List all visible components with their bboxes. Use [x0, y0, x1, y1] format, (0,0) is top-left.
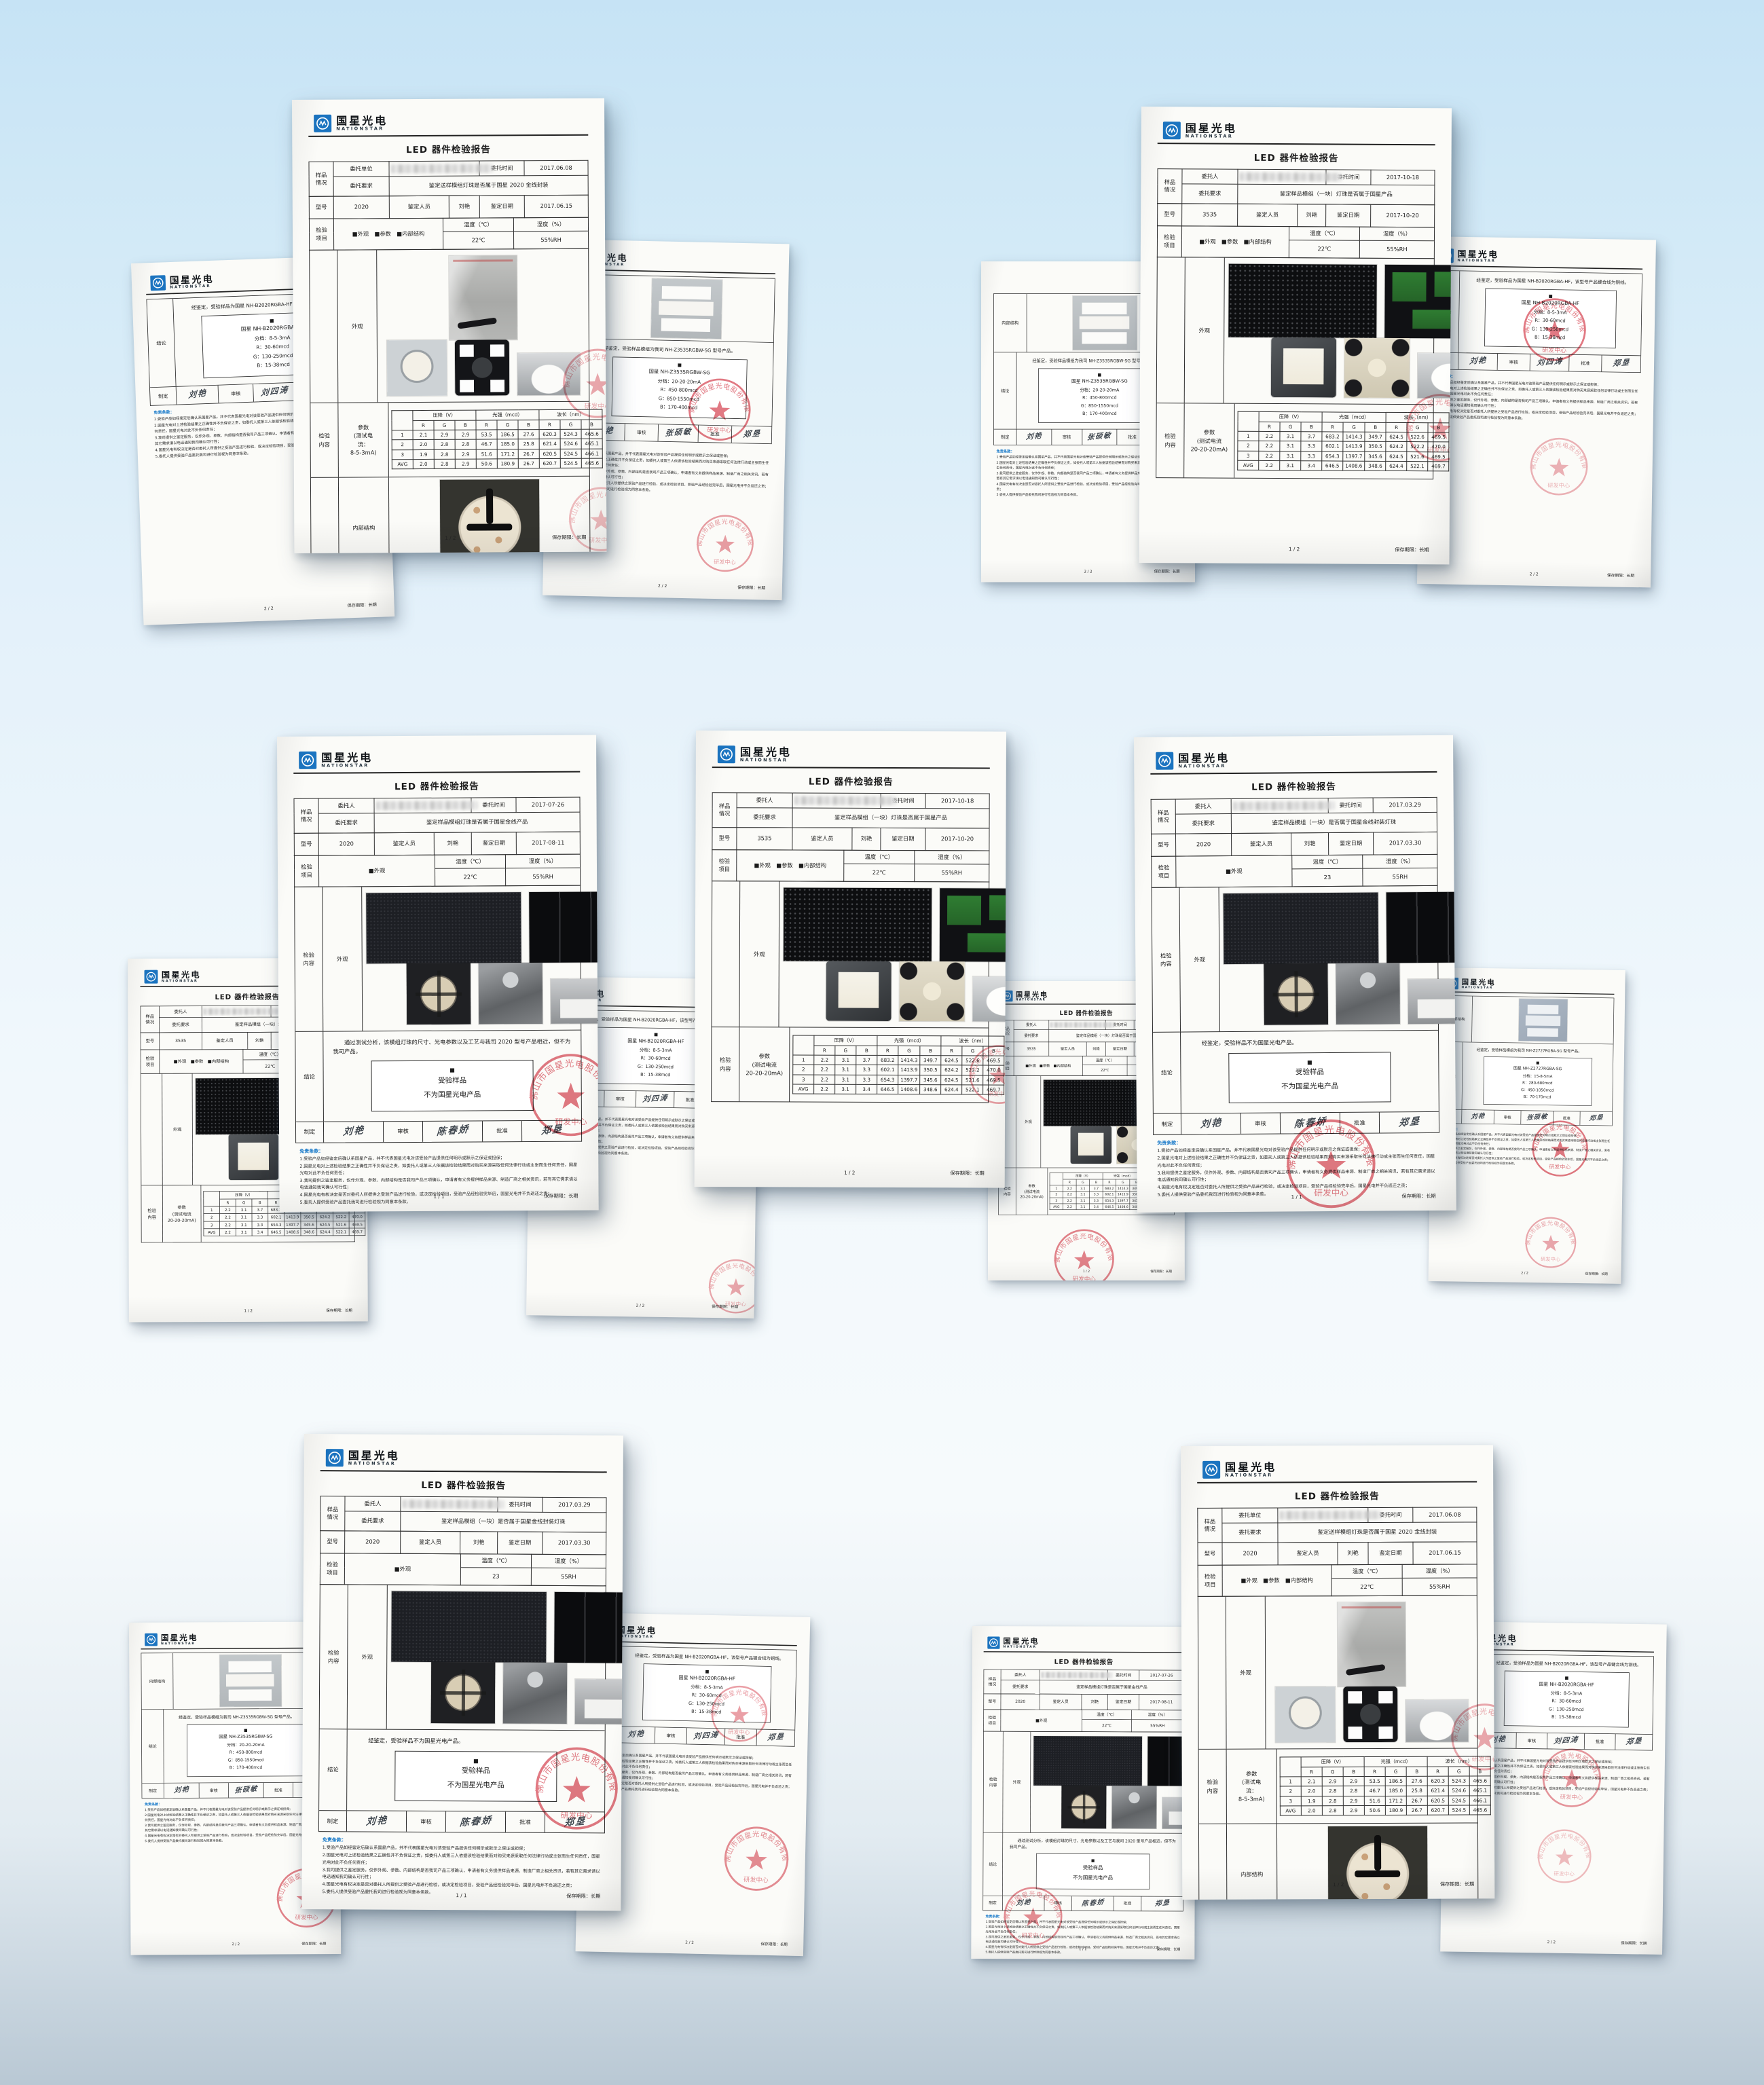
brand-subname: NATIONSTAR	[161, 1642, 198, 1645]
conclusion-label: 结论	[319, 1729, 347, 1810]
inspector-value-cell: 刘艳	[449, 196, 479, 218]
client-name-cell	[1049, 1020, 1106, 1030]
param-sub-header: G	[1280, 422, 1301, 432]
param-value: 2.0	[1301, 1786, 1322, 1796]
page-number: 2 / 2	[1547, 1940, 1556, 1944]
appearance-label: 外观	[347, 1585, 387, 1729]
bag-photo	[1337, 1602, 1405, 1686]
param-row-label: 2	[1238, 441, 1259, 451]
param-value: 25.8	[1406, 1786, 1427, 1796]
param-sub-header: G	[1322, 1767, 1343, 1776]
param-value: 180.9	[1385, 1805, 1406, 1815]
retention-note: 保存期限：长期	[301, 1941, 326, 1946]
sample-header-cell: 样品 情况	[1198, 1508, 1222, 1543]
param-value: 646.5	[1103, 1204, 1116, 1210]
param-value: 2.0	[413, 459, 434, 469]
param-value: 1408.6	[1116, 1204, 1130, 1210]
appearance-section: 检验 内容外观	[1152, 886, 1438, 1032]
chip-detail	[1374, 1835, 1381, 1870]
content-col-label	[1157, 257, 1185, 403]
date-value-cell: 2017.03.30	[1373, 832, 1437, 855]
bin-g-line: G：850-1550mcd	[189, 1756, 303, 1764]
brand-subname: NATIONSTAR	[170, 284, 215, 289]
param-value: 522.2	[1407, 442, 1428, 452]
param-value: 3.4	[1301, 461, 1322, 471]
content-col-label	[712, 881, 739, 1027]
retention-note: 保存期限：长期	[760, 1942, 787, 1948]
content-col-label: 检验 内容	[1152, 888, 1180, 1032]
make-signature: 刘艳	[1015, 1898, 1031, 1909]
conclusion-text: 通过测试分析，该模组灯珠的尺寸、光电参数以及工艺与我司 2020 型号产品相近，…	[333, 1037, 571, 1056]
silverside-photo	[575, 1679, 623, 1724]
param-sub-header: G	[1343, 422, 1365, 432]
param-sub-header: G	[236, 1199, 252, 1206]
appearance-photos	[1224, 258, 1452, 405]
param-value: 345.6	[920, 1075, 941, 1084]
sample-info-table: 样品 情况委托人委托时间2017-10-18委托要求鉴定样品模组（一块）灯珠是否…	[1157, 168, 1435, 205]
brand-name: 国星光电	[740, 746, 792, 758]
request-value-cell: 鉴定样品模组（一块）是否属于国星金线封装灯珠	[401, 1511, 606, 1532]
param-group-wl: 波长（nm）	[941, 1036, 1004, 1046]
request-value-cell: 鉴定送样模组灯珠是否属于国星 2020 金线封装	[389, 175, 588, 196]
param-value: 522.1	[333, 1228, 350, 1236]
sample-info-table: 样品 情况委托人委托时间2017-10-18委托要求鉴定样品模组（一块）灯珠是否…	[712, 792, 990, 828]
param-value: 602.1	[1322, 441, 1343, 451]
review-label: 审核	[624, 424, 658, 441]
param-sub-header: B	[1301, 422, 1322, 432]
make-signature: 刘艳	[1469, 355, 1487, 368]
inspector-value-cell: 刘艳	[1338, 1543, 1368, 1565]
items-header-cell: 检验 项目	[984, 1710, 1001, 1731]
appearance-photos	[779, 882, 1006, 1029]
conclusion-body: 经鉴定，受验样品为国星 NH-B2020RGBA-HF，该型号产品键合线为铜线。…	[1458, 271, 1642, 355]
param-value: 524.3	[1448, 1776, 1469, 1786]
param-value: 2.8	[1322, 1796, 1343, 1805]
silver-photo	[1418, 353, 1452, 399]
param-value: 1413.9	[898, 1065, 920, 1075]
param-value: 2.8	[1322, 1806, 1343, 1815]
param-value: 470.0	[983, 1065, 1004, 1075]
appearance-photos	[382, 249, 584, 403]
param-value: 2.9	[434, 430, 455, 440]
inspector-value-cell: 刘艳	[460, 1532, 498, 1554]
commission-time-value: 2017-10-18	[1371, 170, 1435, 185]
review-label: 审核	[406, 1811, 445, 1832]
verdict-box: ■受验样品不为国星光电产品	[1228, 1052, 1391, 1103]
param-value: 1.9	[413, 449, 434, 460]
param-value: 350.5	[920, 1065, 941, 1075]
signature-row: 制定刘艳审核张硕敏批准郑垦	[1441, 1109, 1612, 1126]
pcb-photo	[940, 888, 1006, 962]
client-label-cell: 委托人	[345, 1496, 401, 1511]
param-value: 2.2	[1063, 1198, 1077, 1204]
param-value: 2.2	[814, 1065, 835, 1074]
param-row-label: AVG	[1238, 460, 1259, 470]
date-value-cell: 2017.06.15	[524, 195, 588, 217]
conclusion-content: 结论经鉴定，受验样品为国星 NH-B2020RGBA-HF，该型号产品键合线为铜…	[1433, 270, 1642, 373]
sample-info-table: 样品 情况委托单位委托时间2017.06.08委托要求鉴定送样模组灯珠是否属于国…	[1197, 1507, 1477, 1543]
param-sub-header: R	[1063, 1179, 1077, 1185]
client-name-cell	[202, 1005, 271, 1017]
brand-subname: NATIONSTAR	[321, 763, 373, 769]
report-title: LED 器件检验报告	[712, 773, 990, 788]
param-group-vf: 压降（V）	[219, 1192, 268, 1199]
param-value: 27.6	[518, 430, 539, 440]
review-signature: 刘四涛	[693, 1730, 719, 1743]
temp-label-cell: 温度（℃）	[1331, 1564, 1402, 1579]
request-value-cell: 鉴定送样模组灯珠是否属于国星 2020 金线封装	[1278, 1522, 1477, 1543]
temp-label-cell: 温度（℃）	[1292, 855, 1363, 869]
model-value-cell: 2020	[318, 833, 374, 855]
param-value: 2.9	[455, 430, 476, 440]
model-label-cell: 型号	[984, 1694, 1001, 1710]
humidity-value-cell: 55%RH	[514, 231, 589, 249]
appearance-photo-cell	[1224, 258, 1452, 405]
make-signature: 刘艳	[173, 1784, 189, 1796]
page-number: 2 / 2	[685, 1940, 694, 1944]
temp-value-cell: 22℃	[1083, 1065, 1128, 1075]
approve-signature-cell: 郑垦	[756, 1729, 795, 1746]
inspection-content: 检验 内容外观结论经鉴定，受验样品不为国星光电产品。■受验样品不为国星光电产品制…	[318, 1584, 606, 1833]
appearance-label: 外观	[1184, 258, 1224, 403]
commission-time-label: 委托时间	[1328, 798, 1373, 813]
humidity-label-cell: 湿度（%）	[531, 1554, 606, 1568]
report-title: LED 器件检验报告	[293, 778, 580, 793]
param-value: 3.4	[252, 1228, 268, 1236]
humidity-label-cell: 湿度（%）	[1131, 1710, 1183, 1720]
param-value: 2.9	[1343, 1806, 1364, 1815]
param-sub-header: B	[581, 420, 602, 430]
client-label-cell: 委托单位	[333, 162, 389, 177]
temp-value-cell: 22℃	[443, 232, 514, 250]
items-header-cell: 检验 项目	[141, 1050, 160, 1073]
param-value: 3.3	[1301, 441, 1322, 451]
request-label-cell: 委托要求	[160, 1017, 202, 1032]
param-row-label: 1	[1238, 431, 1259, 441]
white-photo	[1071, 1126, 1111, 1164]
param-value: 469.7	[983, 1085, 1004, 1094]
page-footer: 1 / 1保存期限：长期	[296, 1193, 583, 1202]
items-value-cell: ■外观	[344, 1553, 460, 1585]
humidity-label-cell: 湿度（%）	[1402, 1564, 1477, 1579]
temp-value-cell: 22℃	[1082, 1720, 1132, 1732]
verdict-line1: 受验样品	[376, 1073, 529, 1088]
param-sub-header: G	[560, 420, 581, 430]
review-signature: 刘四涛	[1536, 356, 1563, 369]
param-value: 2.2	[814, 1084, 835, 1094]
front-photo	[1033, 1736, 1142, 1786]
conclusion-text: 经鉴定，受验样品不为国星光电产品。	[357, 1737, 595, 1746]
front-photo	[1224, 893, 1379, 965]
param-sub-header: R	[1322, 422, 1343, 432]
items-header-cell: 检验 项目	[712, 850, 737, 881]
photo-row	[1228, 337, 1452, 399]
client-name-redacted	[203, 1008, 281, 1015]
chip-detail	[440, 1691, 486, 1695]
temp-value-cell: 22℃	[844, 864, 915, 881]
brand-header: 国星光电NATIONSTAR	[293, 750, 580, 774]
approve-label: 批准	[1114, 1896, 1141, 1911]
humidity-label-cell: 湿度（%）	[1363, 854, 1437, 868]
model-value-cell: 2020	[345, 1531, 401, 1553]
param-group-wl: 波长（nm）	[1427, 1756, 1490, 1767]
page-number: 1 / 2	[445, 535, 456, 541]
param-sub-header: B	[252, 1199, 268, 1206]
content-col-label: 检验 内容	[712, 1027, 739, 1101]
date-value-cell: 2017-08-11	[516, 832, 580, 854]
param-value: 2.9	[1343, 1796, 1364, 1805]
param-group-vf: 压降（V）	[814, 1035, 877, 1046]
param-value: 1413.9	[284, 1213, 301, 1221]
bag-photo	[449, 255, 517, 340]
photo-row	[1033, 1736, 1196, 1786]
param-sub-header: B	[1406, 1767, 1427, 1776]
param-value: 3.4	[856, 1084, 877, 1094]
conclusion-content: 内部结构结论经鉴定，受验样品模组为我司 NH-Z2727RGBA-SG 型号产品…	[1441, 995, 1615, 1126]
bin-bin-line: 分档：20-20-20mA	[189, 1741, 302, 1749]
commission-time-value: 2017-07-26	[516, 797, 580, 812]
page-number: 2 / 2	[264, 606, 274, 611]
param-value: 1.9	[1301, 1796, 1322, 1805]
request-label-cell: 委托要求	[1014, 1030, 1049, 1042]
approve-signature-cell: 郑垦	[1615, 1734, 1652, 1750]
param-value: 349.7	[920, 1056, 941, 1065]
disclaimer-item: 4.国星光电有权决定是否对委托人所提供之受验产品进行检验，或决定检验项目，受验产…	[322, 1881, 602, 1889]
model-label-cell: 型号	[712, 828, 737, 850]
photo-row	[386, 339, 579, 396]
retention-note: 保存期限：长期	[737, 585, 765, 591]
review-label: 审核	[1241, 1113, 1280, 1134]
sample-info-table: 样品 情况委托人委托时间2017-07-26委托要求鉴定样品模组灯珠是否属于国星…	[293, 797, 580, 834]
review-label: 审核	[1497, 354, 1530, 371]
review-label: 审核	[199, 1783, 228, 1798]
param-value: 2.8	[434, 449, 455, 460]
inspection-content: 检验 内容外观结论通过测试分析，该模组灯珠的尺寸、光电参数以及工艺与我司 202…	[982, 1731, 1183, 1911]
sample-header-cell: 样品 情况	[1158, 169, 1182, 204]
chip-detail	[466, 523, 512, 530]
humidity-label-cell: 湿度（%）	[915, 851, 989, 865]
humidity-label-cell: 湿度（%）	[505, 854, 580, 868]
review-signature-cell: 刘四涛	[686, 1728, 725, 1745]
param-row-label: 1	[1280, 1777, 1301, 1786]
brand-subname: NATIONSTAR	[162, 979, 201, 983]
parameter-table: 压降（V）光强（mcd）波长（nm）RGBRGBRGB12.12.92.953.…	[391, 409, 602, 470]
param-value: 624.4	[1386, 461, 1407, 471]
commission-time-value: 2017.03.29	[543, 1497, 606, 1512]
humidity-label-cell: 湿度（%）	[1359, 227, 1434, 241]
param-sub-header: G	[1116, 1179, 1130, 1185]
param-value: 683.2	[877, 1055, 898, 1065]
review-signature-cell: 张硕敏	[658, 424, 699, 442]
date-label-cell: 鉴定日期	[479, 196, 524, 218]
request-label-cell: 委托要求	[1175, 814, 1231, 834]
items-value-cell: ■外观 ■参数 ■内部结构	[1014, 1056, 1082, 1076]
matrix-photo	[1228, 264, 1377, 338]
param-value: 522.1	[1407, 462, 1428, 472]
param-value: 171.2	[497, 449, 518, 459]
param-row-label: 3	[204, 1221, 220, 1229]
date-label-cell: 鉴定日期	[1368, 1542, 1413, 1564]
conclusion-section: 结论经鉴定，受验样品模组为我司 NH-Z2727RGBA-SG 型号产品。■国星…	[1442, 1041, 1613, 1111]
param-value: 620.7	[539, 458, 560, 468]
report-title: LED 器件检验报告	[1158, 149, 1435, 164]
items-value-cell: ■外观	[1001, 1710, 1082, 1732]
report-title: LED 器件检验报告	[1197, 1488, 1477, 1502]
sample-header-cell: 样品 情况	[984, 1669, 1001, 1694]
internal-structure-label: 内部结构	[994, 294, 1027, 352]
page-footer: 1 / 1保存期限：长期	[1154, 1193, 1440, 1203]
param-row-label: 1	[1050, 1185, 1063, 1192]
param-value: 624.2	[941, 1065, 962, 1075]
brand-header: 国星光电NATIONSTAR	[141, 1632, 327, 1649]
nationstar-logo-icon	[299, 752, 316, 769]
inspection-content: 外观检验 内容参数 (测试电流 20-20-20mA)压降（V）光强（mcd）波…	[1156, 257, 1435, 479]
inspection-content: 外观检验 内容参数 (测试电 流： 8-5-3mA)压降（V）光强（mcd）波长…	[1198, 1595, 1479, 1900]
items-info-table: 检验 项目■外观温度（℃）湿度（%）22℃55%RH	[294, 854, 581, 887]
param-value: 469.7	[1428, 462, 1449, 472]
chip-detail	[1355, 1870, 1400, 1877]
disclaimer-item: 1.受验产品如经鉴定后确认系国星产品，并不代表国星光电对该受验产品提供任何明示或…	[985, 1920, 1181, 1925]
param-value: 646.5	[1322, 461, 1343, 471]
sample-header-cell: 样品 情况	[712, 793, 737, 828]
param-value: 50.6	[476, 459, 497, 469]
nationstar-logo-icon	[718, 745, 735, 763]
approve-signature: 郑垦	[1625, 1736, 1642, 1748]
pads-photo	[900, 961, 965, 1021]
date-label-cell: 鉴定日期	[471, 832, 516, 855]
param-row-label: 2	[793, 1065, 814, 1074]
model-info-table: 型号2020鉴定人员刘艳鉴定日期2017.03.30	[320, 1530, 606, 1555]
param-value: 654.3	[877, 1075, 898, 1084]
content-col-label: 检验 内容	[983, 1732, 1003, 1832]
model-info-table: 型号2020鉴定人员刘艳鉴定日期2017.06.15	[1197, 1541, 1477, 1565]
appearance-photo-cell	[1265, 1596, 1477, 1749]
chip-detail	[416, 993, 462, 996]
param-value: 50.6	[1364, 1805, 1385, 1815]
model-label-cell: 型号	[309, 196, 333, 219]
appearance-photos	[1219, 885, 1456, 1031]
param-sub-header: G	[962, 1046, 983, 1055]
approve-signature-cell: 郑垦	[1580, 1111, 1613, 1125]
param-value: 624.5	[941, 1056, 962, 1065]
die-dot	[474, 547, 481, 553]
param-value: 1414.3	[1116, 1185, 1130, 1192]
date-label-cell: 鉴定日期	[1107, 1694, 1139, 1710]
report-page-a2: 国星光电NATIONSTARLED 器件检验报告样品 情况委托单位委托时间201…	[292, 98, 606, 553]
conclusion-body: 经鉴定，受验样品不为国星光电产品。■受验样品不为国星光电产品	[1180, 1031, 1439, 1113]
brand-header: 国星光电NATIONSTAR	[984, 1636, 1184, 1653]
client-name-cell	[374, 798, 471, 813]
retention-note: 保存期限：长期	[552, 534, 586, 541]
items-info-table: 检验 项目■外观温度（℃）湿度（%）2355RH	[320, 1553, 606, 1586]
model-value-cell: 2020	[1222, 1543, 1278, 1565]
rounddark-photo	[1061, 1786, 1106, 1828]
param-value: 2.0	[1301, 1806, 1322, 1815]
retention-note: 保存期限：长期	[544, 1193, 578, 1200]
temp-value-cell: 22℃	[1289, 240, 1359, 259]
review-signature: 陈春娇	[436, 1122, 470, 1140]
brand-header: 国星光电NATIONSTAR	[1150, 750, 1437, 775]
param-value: 524.5	[1448, 1796, 1469, 1805]
param-value: 2.2	[1259, 431, 1280, 441]
nationstar-logo-icon	[326, 1449, 344, 1466]
review-signature: 陈春娇	[1293, 1115, 1327, 1132]
page-number: 1 / 2	[1333, 1881, 1344, 1887]
brand-header: 国星光电NATIONSTAR	[712, 745, 990, 769]
disclaimer-item: 1.受验产品如经鉴定后确认系国星产品，并不代表国星光电对该受验产品提供任何明示或…	[323, 1845, 602, 1853]
client-name-cell	[401, 1496, 498, 1512]
brand-name: 国星光电	[321, 752, 373, 764]
retention-note: 保存期限：长期	[1585, 1272, 1607, 1276]
param-value: 349.7	[1365, 432, 1386, 442]
param-value: 465.1	[1469, 1786, 1490, 1795]
param-value: 25.8	[518, 439, 539, 449]
approve-label: 批准	[698, 425, 732, 443]
review-label: 审核	[1516, 1733, 1547, 1748]
param-row-label: 3	[1280, 1796, 1301, 1806]
disclaimer-item: 2.国星光电对上述检验结果之正确性并不负保证之责，如委托人或第三人依据该检验结果…	[985, 1925, 1181, 1935]
photo-row	[367, 962, 599, 1025]
param-value: 3.1	[835, 1075, 856, 1084]
param-value: 2.2	[220, 1214, 236, 1221]
bin-spec-box: ■国星 NH-Z3535RGBW-SG分档：20-20-20mAR：450-80…	[611, 357, 747, 419]
param-value: 186.5	[1385, 1776, 1406, 1786]
photo-row	[784, 888, 1006, 963]
param-sub-header: R	[1259, 422, 1280, 432]
param-sub-header: R	[1427, 1767, 1448, 1776]
param-row-label: AVG	[204, 1229, 220, 1236]
sample-header-cell: 样品 情况	[294, 798, 318, 833]
page-number: 2 / 2	[636, 1303, 645, 1308]
approve-signature-cell: 郑垦	[1379, 1112, 1439, 1133]
client-name-redacted	[402, 1500, 504, 1509]
items-value-cell: ■外观 ■参数 ■内部结构	[333, 218, 443, 250]
param-sub-header: B	[1090, 1179, 1103, 1185]
request-value-cell: 鉴定样品模组（一块）灯珠是否属于国星产品	[1238, 184, 1435, 205]
param-value: 350.5	[1365, 441, 1386, 451]
date-label-cell: 鉴定日期	[498, 1532, 543, 1554]
review-signature-cell: 刘四涛	[253, 383, 295, 402]
make-label: 制定	[150, 387, 177, 405]
report-page-c6: 国星光电NATIONSTARLED 器件检验报告样品 情况委托人委托时间2017…	[1134, 735, 1456, 1213]
conclusion-text: 经鉴定，受验样品模组为我司 NH-Z3535RGBW-SG 型号产品。	[170, 1714, 320, 1720]
verdict-line1: 受验样品	[1040, 1863, 1147, 1873]
items-header-cell: 检验 项目	[1198, 1565, 1222, 1596]
content-col-label: 检验 内容	[141, 1185, 162, 1242]
model-label-cell: 型号	[320, 1531, 345, 1553]
bin-model-name: 国星 NH-Z3535RGBW-SG	[189, 1733, 302, 1741]
param-value: 2.0	[413, 440, 434, 450]
client-name-redacted	[794, 796, 896, 806]
appearance-section: 检验 内容外观	[983, 1732, 1183, 1833]
client-label-cell: 委托单位	[1222, 1508, 1278, 1523]
param-value: 2.9	[455, 459, 476, 469]
nationstar-logo-icon	[145, 1634, 158, 1646]
items-value-cell: ■外观	[1176, 855, 1292, 887]
param-sub-header: R	[219, 1199, 236, 1206]
make-signature-cell: 刘艳	[1002, 1896, 1044, 1911]
appearance-label: 外观	[1002, 1732, 1030, 1833]
bin-b-line: B：15-38mcd	[1506, 1713, 1625, 1722]
bin-spec-box: ■国星 NH-Z3535RGBW-SG分档：20-20-20mAR：450-80…	[187, 1724, 306, 1777]
param-row-label: 2	[1050, 1192, 1063, 1198]
verdict-box: ■受验样品不为国星光电产品	[394, 1750, 557, 1802]
appearance-photo-cell	[386, 1585, 623, 1731]
model-info-table: 型号2020鉴定人员刘艳鉴定日期2017.03.30	[1151, 832, 1437, 857]
parameter-table: 压降（V）光强（mcd）波长（nm）RGBRGBRGB12.12.92.953.…	[1280, 1756, 1491, 1816]
param-value: 3.1	[1076, 1192, 1090, 1198]
param-value: 469.5	[1428, 451, 1449, 462]
